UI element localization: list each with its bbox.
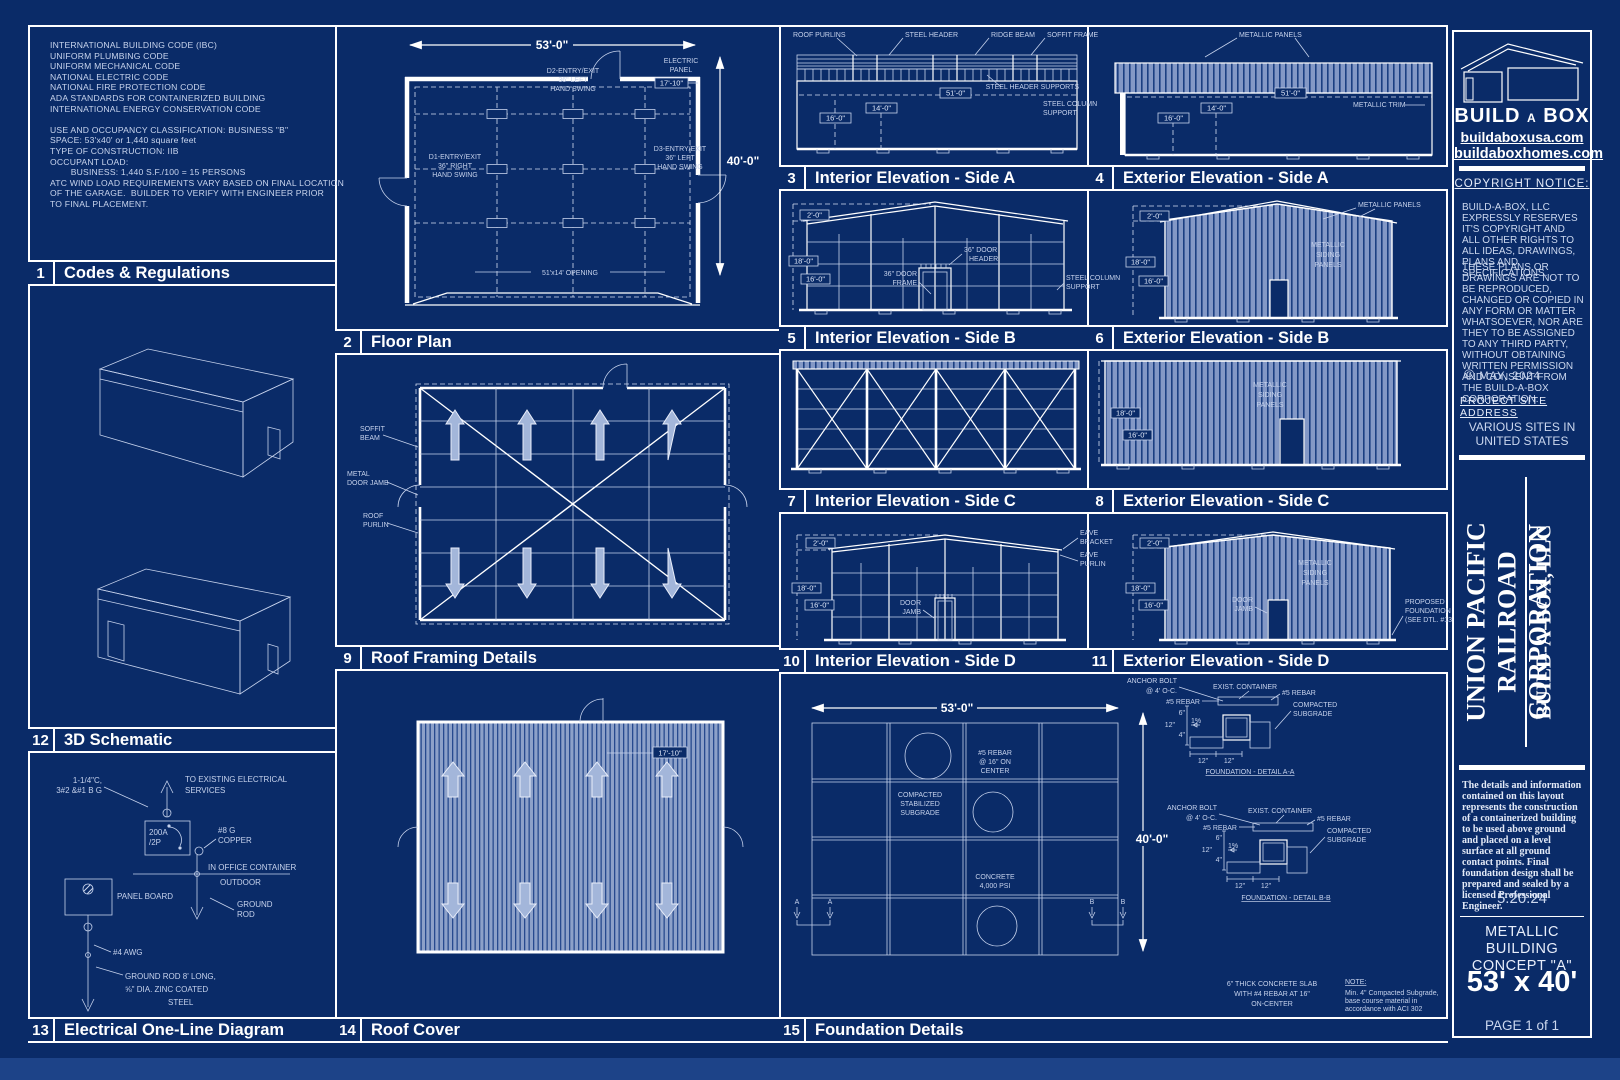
elevation-a-dims: 16'-0" 14'-0" 51'-0" [799, 88, 1077, 149]
in-office-label: IN OFFICE CONTAINER [208, 863, 297, 872]
svg-text:PURLIN: PURLIN [363, 522, 389, 529]
svg-text:16'-0": 16'-0" [806, 275, 825, 284]
metal-door-jamb-label: METAL [347, 471, 370, 478]
svg-text:ROD: ROD [237, 910, 255, 919]
desk-strip [0, 1058, 1620, 1080]
blueprint-sheet: INTERNATIONAL BUILDING CODE (IBC) UNIFOR… [0, 0, 1620, 1080]
copyright-icon: © [1464, 366, 1475, 382]
code-line: OF THE GARAGE. BUILDER TO VERIFY WITH EN… [50, 188, 332, 199]
panel-4-titlebar: 4 Exterior Elevation - Side A [1087, 165, 1448, 191]
code-line: NATIONAL ELECTRIC CODE [50, 72, 332, 83]
logo-wordmark: BUILD A BOX [1454, 105, 1590, 128]
svg-text:18'-0": 18'-0" [794, 257, 813, 266]
panel-number: 1 [28, 262, 55, 284]
svg-text:4": 4" [1216, 857, 1223, 864]
svg-text:WITH #4 REBAR AT 16": WITH #4 REBAR AT 16" [1234, 991, 1310, 998]
code-line: USE AND OCCUPANCY CLASSIFICATION: BUSINE… [50, 125, 332, 136]
copyright-date: © MAY, 2024 [1454, 366, 1600, 382]
code-line: UNIFORM PLUMBING CODE [50, 51, 332, 62]
metallic-panel-band [1115, 63, 1432, 93]
interior-elevation-b-drawing: 2'-0" 18'-0" 16'-0" 36" DOOR HEADER 36" … [779, 190, 1109, 325]
svg-text:COMPACTED: COMPACTED [1293, 702, 1337, 709]
svg-text:18'-0": 18'-0" [1131, 258, 1150, 267]
svg-text:B: B [1121, 899, 1126, 906]
svg-text:DOOR JAMB: DOOR JAMB [347, 480, 389, 487]
project-site-value: VARIOUS SITES IN UNITED STATES [1454, 420, 1590, 448]
svg-text:ON-CENTER: ON-CENTER [1251, 1001, 1293, 1008]
svg-text:HAND SWING: HAND SWING [432, 172, 478, 179]
code-line: ATC WIND LOAD REQUIREMENTS VARY BASED ON… [50, 178, 332, 189]
panel-board: PANEL BOARD [65, 879, 173, 915]
svg-text:JAMB: JAMB [1234, 606, 1253, 613]
svg-text:2'-0": 2'-0" [1147, 539, 1162, 548]
section-markers: A A B B [794, 899, 1126, 925]
code-line: SPACE: 53'x40' or 1,440 square feet [50, 135, 332, 146]
soffit-beam-label: SOFFIT [360, 426, 386, 433]
roof-purlin-label: ROOF [363, 513, 383, 520]
concrete-sample-circle [977, 906, 1017, 946]
svg-text:FOUNDATION: FOUNDATION [1405, 608, 1451, 615]
panel-15-titlebar: 15 Foundation Details [779, 1017, 1448, 1043]
svg-text:FRAME: FRAME [893, 280, 918, 287]
url-buildaboxusa[interactable]: buildaboxusa.com [1454, 129, 1590, 145]
svg-text:18'-0": 18'-0" [797, 584, 816, 593]
svg-text:A: A [828, 899, 833, 906]
project-site-label: PROJECT SITE ADDRESS [1454, 395, 1596, 419]
door2-label: D2-ENTRY/EXIT [547, 68, 600, 75]
electric-panel-label: ELECTRIC [664, 58, 699, 65]
page-indicator: PAGE 1 of 1 [1454, 1018, 1590, 1033]
code-line: INTERNATIONAL BUILDING CODE (IBC) [50, 40, 332, 51]
svg-text:BEAM: BEAM [360, 435, 380, 442]
svg-text:ANCHOR BOLT: ANCHOR BOLT [1127, 678, 1178, 685]
foundation-detail-a: ANCHOR BOLT @ 4' O-C. #5 REBAR EXIST. CO… [1127, 678, 1337, 776]
svg-text:#5 REBAR: #5 REBAR [1282, 690, 1316, 697]
panel-2-titlebar: 2 Floor Plan [335, 329, 779, 355]
steel-header-label: STEEL HEADER [905, 32, 958, 39]
code-line: OCCUPANT LOAD: [50, 157, 332, 168]
svg-text:HAND SWING: HAND SWING [550, 86, 596, 93]
svg-text:CENTER: CENTER [981, 768, 1010, 775]
elevation-10-dims: 2'-0" 18'-0" 16'-0" [792, 535, 941, 640]
svg-text:⅝" DIA. ZINC COATED: ⅝" DIA. ZINC COATED [125, 985, 208, 994]
door-jamb-label: DOOR [900, 600, 921, 607]
elevation-4-dims: 16'-0" 14'-0" 51'-0" [1127, 88, 1432, 155]
svg-text:12": 12" [1165, 722, 1176, 729]
svg-text:12": 12" [1198, 758, 1209, 765]
outdoor-label: OUTDOOR [220, 878, 261, 887]
divider-bar [1459, 166, 1585, 171]
code-line: UNIFORM MECHANICAL CODE [50, 61, 332, 72]
detail-b-title: FOUNDATION - DETAIL B-B [1241, 895, 1331, 902]
elevation-5-dims: 2'-0" 18'-0" 16'-0" [789, 204, 931, 310]
panel-14-titlebar: 14 Roof Cover [335, 1017, 779, 1043]
roof-purlins-label: ROOF PURLINS [793, 32, 846, 39]
svg-text:EXIST. CONTAINER: EXIST. CONTAINER [1213, 684, 1277, 691]
panel-10-titlebar: 10 Interior Elevation - Side D [779, 648, 1087, 674]
svg-text:STABILIZED: STABILIZED [900, 801, 940, 808]
svg-text:18'-0": 18'-0" [1131, 584, 1150, 593]
svg-text:36" RIGHT: 36" RIGHT [438, 163, 473, 170]
copyright-title: COPYRIGHT NOTICE: [1454, 178, 1590, 190]
services-label: TO EXISTING ELECTRICAL [185, 775, 288, 784]
svg-text:SIDING: SIDING [1316, 252, 1340, 259]
panel-1-titlebar: 1 Codes & Regulations [28, 260, 335, 286]
door [1270, 280, 1288, 318]
opening-label: 51'x14' OPENING [542, 270, 598, 277]
slab-notes: 6" THICK CONCRETE SLAB WITH #4 REBAR AT … [1227, 979, 1439, 1013]
roof-framing-labels: SOFFIT BEAM METAL DOOR JAMB ROOF PURLIN [347, 426, 418, 533]
svg-text:PANELS: PANELS [1301, 580, 1328, 587]
svg-text:COMPACTED: COMPACTED [1327, 828, 1371, 835]
code-line: TYPE OF CONSTRUCTION: IIB [50, 146, 332, 157]
door-frame-label: 36" DOOR [884, 271, 917, 278]
svg-text:accordance with ACI 302: accordance with ACI 302 [1345, 1006, 1423, 1013]
svg-text:SUBGRADE: SUBGRADE [900, 810, 940, 817]
soffit-band [793, 361, 1079, 369]
dim-53ft: 53'-0" [536, 38, 569, 52]
divider-bar [1459, 455, 1585, 460]
panel-6-titlebar: 6 Exterior Elevation - Side B [1087, 325, 1448, 351]
svg-text:@ 4' O-C.: @ 4' O-C. [1186, 815, 1217, 822]
breaker: 200A /2P [145, 821, 190, 855]
svg-text:#5 REBAR: #5 REBAR [1203, 825, 1237, 832]
interior-elevation-a-drawing: 16'-0" 14'-0" 51'-0" ROOF PURLINS STEEL … [779, 25, 1087, 165]
gable-frame [824, 535, 1066, 644]
exterior-elevation-a-drawing: 16'-0" 14'-0" 51'-0" METALLIC PANELS MET… [1087, 25, 1448, 165]
panel-13-titlebar: 13 Electrical One-Line Diagram [28, 1017, 335, 1043]
panel-5-titlebar: 5 Interior Elevation - Side B [779, 325, 1087, 351]
door-header-label: 36" DOOR [964, 247, 997, 254]
roof-dim: 17'-10" [658, 749, 682, 758]
svg-text:STEEL: STEEL [168, 998, 194, 1007]
svg-text:3#2 &#1 B G: 3#2 &#1 B G [56, 786, 102, 795]
vertical-divider [1525, 477, 1527, 747]
svg-text:2'-0": 2'-0" [813, 539, 828, 548]
codes-regulations-text: INTERNATIONAL BUILDING CODE (IBC) UNIFOR… [50, 40, 332, 210]
roof-framing-drawing: SOFFIT BEAM METAL DOOR JAMB ROOF PURLIN [335, 355, 779, 645]
svg-text:36" LEFT: 36" LEFT [665, 155, 695, 162]
svg-text:PANELS: PANELS [1314, 262, 1341, 269]
load-arrows [446, 410, 681, 598]
svg-text:SIDING: SIDING [1303, 570, 1327, 577]
rod-note: GROUND ROD 8' LONG, [125, 972, 216, 981]
svg-text:16'-0": 16'-0" [1164, 114, 1183, 123]
dim-40ft: 40'-0" [727, 154, 760, 168]
detail-a-title: FOUNDATION - DETAIL A-A [1206, 769, 1295, 776]
panel-12-titlebar: 12 3D Schematic [28, 727, 335, 753]
svg-text:#5 REBAR: #5 REBAR [1166, 699, 1200, 706]
svg-text:36" LEFT: 36" LEFT [558, 77, 588, 84]
svg-text:12": 12" [1235, 883, 1246, 890]
svg-text:@ 16" ON: @ 16" ON [979, 759, 1011, 766]
svg-text:14'-0": 14'-0" [872, 104, 891, 113]
interior-elevation-d-drawing: 2'-0" 18'-0" 16'-0" DOOR JAMB EAVE BRACK… [779, 513, 1124, 648]
door [1280, 419, 1304, 465]
exterior-elevation-b-drawing: 2'-0" 18'-0" 16'-0" METALLIC PANELS META… [1087, 190, 1448, 325]
rebar-note: #5 REBAR [978, 750, 1012, 757]
dim-40ft-group: 40'-0" [1131, 713, 1173, 951]
siding-label: METALLIC [1311, 242, 1345, 249]
svg-text:12": 12" [1202, 847, 1213, 854]
iso-box-bottom [98, 569, 290, 694]
service-riser [161, 781, 173, 817]
exterior-elevation-c-drawing: 18'-0" 16'-0" METALLIC SIDING PANELS [1087, 351, 1448, 488]
feed-label: 1-1/4"C, [73, 776, 102, 785]
code-line: ADA STANDARDS FOR CONTAINERIZED BUILDING [50, 93, 332, 104]
svg-text:16'-0": 16'-0" [1144, 601, 1163, 610]
copper-label: #8 G [218, 826, 235, 835]
svg-text:16'-0": 16'-0" [1128, 431, 1147, 440]
svg-text:base course material in: base course material in [1345, 998, 1417, 1005]
foundation-detail-b: ANCHOR BOLT @ 4' O-C. #5 REBAR EXIST. CO… [1167, 805, 1371, 902]
panel-3-titlebar: 3 Interior Elevation - Side A [779, 165, 1087, 191]
svg-text:SUBGRADE: SUBGRADE [1327, 837, 1367, 844]
metallic-panels-label: METALLIC PANELS [1358, 202, 1421, 209]
svg-text:JAMB: JAMB [902, 609, 921, 616]
siding-wall [1105, 361, 1397, 465]
code-line [50, 114, 332, 125]
code-line: BUSINESS: 1,440 S.F./100 = 15 PERSONS [50, 167, 332, 178]
door-jamb-label: DOOR [1232, 597, 1253, 604]
svg-text:1%: 1% [1228, 843, 1238, 850]
svg-text:SUPPORT: SUPPORT [1043, 110, 1077, 117]
title-block-sidebar: BUILD A BOX buildaboxusa.com buildaboxho… [1452, 30, 1592, 1038]
iso-box-top [100, 349, 293, 477]
dim-40ft: 40'-0" [1136, 832, 1169, 846]
svg-text:18'-0": 18'-0" [1116, 409, 1135, 418]
door3-label: D3-ENTRY/EXIT [654, 146, 707, 153]
code-line: INTERNATIONAL ENERGY CONSERVATION CODE [50, 104, 332, 115]
thin-rule [1460, 916, 1584, 917]
svg-text:16'-0": 16'-0" [810, 601, 829, 610]
note-title: NOTE: [1345, 979, 1366, 986]
svg-text:B: B [1090, 899, 1095, 906]
metallic-trim-label: METALLIC TRIM [1353, 102, 1406, 109]
panel-8-titlebar: 8 Exterior Elevation - Side C [1087, 488, 1448, 514]
svg-text:14'-0": 14'-0" [1207, 104, 1226, 113]
svg-text:4,000 PSI: 4,000 PSI [980, 883, 1011, 890]
svg-text:1%: 1% [1191, 718, 1201, 725]
siding-label: METALLIC [1298, 560, 1332, 567]
slab-note: 6" THICK CONCRETE SLAB [1227, 981, 1318, 988]
svg-text:SERVICES: SERVICES [185, 786, 225, 795]
copyright-paragraph-2: THESE PLANS OR DRAWINGS ARE NOT TO BE RE… [1462, 262, 1584, 405]
building-size: 53' x 40' [1454, 966, 1590, 999]
ground-rod-label: GROUND [237, 900, 273, 909]
panel-7-titlebar: 7 Interior Elevation - Side C [779, 488, 1087, 514]
svg-text:6": 6" [1216, 835, 1223, 842]
panel-dim-label: 17'-10" [660, 79, 684, 88]
floor-plan-grid [415, 87, 690, 297]
panel-board-label: PANEL BOARD [117, 892, 173, 901]
door1-label: D1-ENTRY/EXIT [429, 154, 482, 161]
svg-text:HAND SWING: HAND SWING [657, 164, 703, 171]
door [1268, 600, 1288, 640]
revision-date: 5.20.24 [1454, 890, 1590, 907]
svg-text:2'-0": 2'-0" [807, 211, 822, 220]
metallic-panels-label: METALLIC PANELS [1239, 32, 1302, 39]
svg-text:16'-0": 16'-0" [1144, 277, 1163, 286]
ridge-beam-label: RIDGE BEAM [991, 32, 1035, 39]
elevation-a-structure [797, 55, 1077, 153]
svg-text:HEADER: HEADER [969, 256, 998, 263]
proposed-foundation-label: PROPOSED [1405, 599, 1445, 606]
support-markers [487, 110, 655, 228]
rebar-sample-circle [973, 792, 1013, 832]
roof-cover-drawing: 17'-10" [335, 671, 779, 1017]
floor-plan-drawing: 53'-0" 40'-0" D2-ENTRY/EXIT 36" LEFT HAN… [335, 25, 779, 329]
svg-text:/2P: /2P [149, 838, 161, 847]
svg-text:COPPER: COPPER [218, 836, 252, 845]
svg-text:ANCHOR BOLT: ANCHOR BOLT [1167, 805, 1218, 812]
divider-bar [1459, 765, 1585, 770]
subgrade-sample-circle [905, 733, 951, 779]
3d-schematic-drawing [28, 289, 335, 725]
siding-label: METALLIC [1253, 382, 1287, 389]
gable-frame [799, 202, 1072, 314]
panel-9-titlebar: 9 Roof Framing Details [335, 645, 779, 671]
svg-text:A: A [795, 899, 800, 906]
svg-text:#5 REBAR: #5 REBAR [1317, 816, 1351, 823]
slab-plan: 53'-0" #5 REBAR @ 16" ON CENTER COMPACTE… [812, 701, 1118, 955]
svg-text:EXIST. CONTAINER: EXIST. CONTAINER [1248, 808, 1312, 815]
svg-text:4": 4" [1179, 732, 1186, 739]
build-a-box-logo-icon [1458, 38, 1586, 105]
dim-53ft: 53'-0" [941, 701, 974, 715]
svg-text:6": 6" [1179, 710, 1186, 717]
concrete-note: CONCRETE [975, 874, 1015, 881]
interior-elevation-c-drawing [779, 351, 1087, 488]
svg-text:51'-0": 51'-0" [946, 89, 965, 98]
svg-text:12": 12" [1224, 758, 1235, 765]
steel-header-supports-label: STEEL HEADER SUPPORTS [986, 84, 1080, 91]
svg-text:SUBGRADE: SUBGRADE [1293, 711, 1333, 718]
code-line: NATIONAL FIRE PROTECTION CODE [50, 82, 332, 93]
svg-text:PANEL: PANEL [670, 67, 693, 74]
panel-title: Codes & Regulations [55, 262, 335, 284]
svg-text:Min. 4" Compacted Subgrade,: Min. 4" Compacted Subgrade, [1345, 990, 1439, 997]
svg-text:12": 12" [1261, 883, 1272, 890]
subgrade-note: COMPACTED [898, 792, 942, 799]
svg-text:200A: 200A [149, 828, 168, 837]
awg-label: #4 AWG [113, 948, 143, 957]
svg-text:SIDING: SIDING [1258, 392, 1282, 399]
svg-text:51'-0": 51'-0" [1281, 89, 1300, 98]
company-name: BUILD-A-BOX, LLC [1530, 481, 1558, 764]
electrical-one-line-drawing: 1-1/4"C, 3#2 &#1 B G TO EXISTING ELECTRI… [28, 755, 335, 1017]
panel-11-titlebar: 11 Exterior Elevation - Side D [1087, 648, 1448, 674]
svg-text:@ 4' O-C.: @ 4' O-C. [1146, 688, 1177, 695]
foundation-details-drawing: 53'-0" #5 REBAR @ 16" ON CENTER COMPACTE… [779, 673, 1448, 1017]
client-name: UNION PACIFIC RAILROAD CORPORATION [1461, 481, 1525, 764]
exterior-elevation-d-drawing: 2'-0" 18'-0" 16'-0" METALLIC SIDING PANE… [1087, 513, 1455, 648]
svg-text:(SEE DTL. #13): (SEE DTL. #13) [1405, 617, 1454, 624]
code-line: TO FINAL PLACEMENT. [50, 199, 332, 210]
url-buildaboxhomes[interactable]: buildaboxhomes.com [1454, 146, 1590, 162]
svg-text:2'-0": 2'-0" [1147, 212, 1162, 221]
logo-a: A [1527, 111, 1537, 125]
svg-text:16'-0": 16'-0" [826, 114, 845, 123]
svg-text:PANELS: PANELS [1256, 402, 1283, 409]
